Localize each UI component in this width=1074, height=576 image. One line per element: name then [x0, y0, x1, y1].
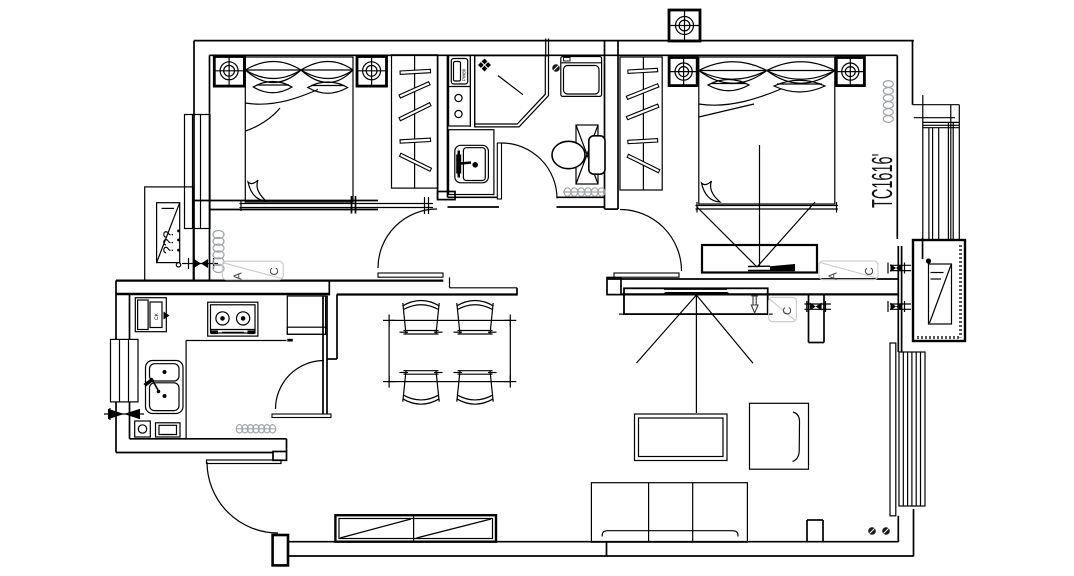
- svg-text:TC1616': TC1616': [867, 154, 899, 208]
- svg-text:C: C: [864, 267, 876, 275]
- svg-text:C: C: [269, 267, 281, 275]
- svg-text:C: C: [782, 307, 794, 315]
- svg-text:A: A: [828, 272, 840, 280]
- svg-text:???: ???: [160, 230, 176, 254]
- svg-text:CK: CK: [154, 312, 160, 320]
- svg-text:PW80: PW80: [462, 68, 467, 81]
- svg-text:A: A: [233, 272, 245, 280]
